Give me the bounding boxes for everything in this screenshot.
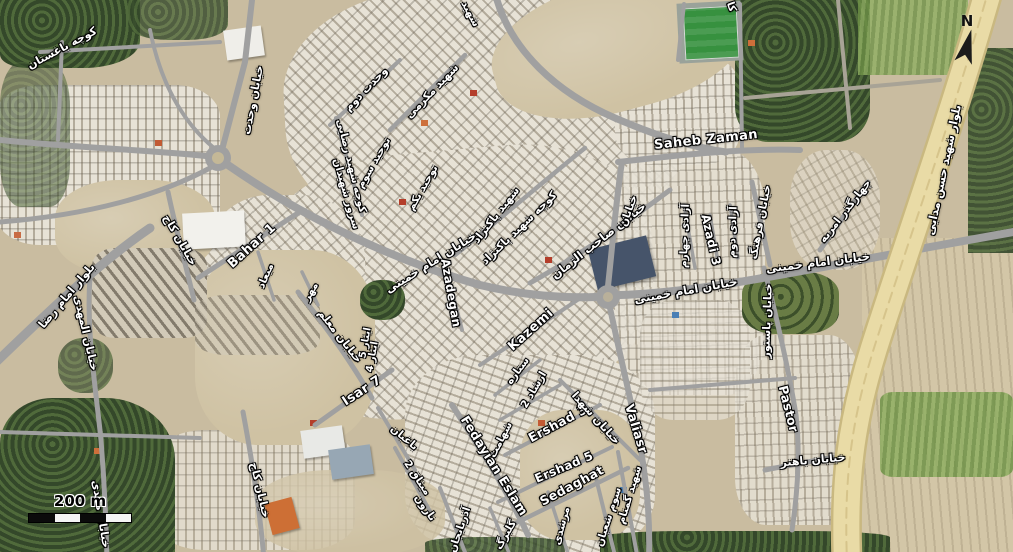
road-kaj-upper <box>168 192 194 300</box>
road-kazemi <box>480 295 585 365</box>
road-imam-reza-blvd <box>0 228 150 368</box>
road-orchard-vertical <box>838 0 850 128</box>
road-west-horizontal <box>0 140 206 156</box>
road-misagh <box>395 448 432 515</box>
roundabout-central-center <box>603 292 613 302</box>
road-farhang <box>752 182 770 265</box>
north-indicator: N <box>946 12 988 70</box>
road-sevom-shaban <box>594 470 616 552</box>
scale-bar-label: 200 m <box>28 492 132 510</box>
road-stadium-west <box>678 4 684 60</box>
road-moallem <box>298 292 372 398</box>
roads-layer <box>0 0 1013 552</box>
road-top-left-vertical <box>58 42 62 140</box>
road-ershad2 <box>500 385 560 420</box>
road-northwest <box>150 30 214 148</box>
north-arrow-icon <box>950 25 984 68</box>
road-golbarg <box>490 508 512 552</box>
road-vahdat-dovom <box>330 60 400 125</box>
roundabout-northwest-center <box>212 152 224 164</box>
road-chahargozar <box>820 182 868 250</box>
road-isar7 <box>315 370 392 425</box>
road-mokarrami <box>390 55 465 130</box>
road-fedayian-eslam <box>452 405 528 535</box>
road-azadi-3 <box>730 205 738 258</box>
road-azadegan <box>444 262 462 330</box>
road-sedaghat <box>512 468 628 525</box>
road-setareh <box>495 360 540 395</box>
road-pastor <box>764 268 798 530</box>
road-azadi-2 <box>710 215 718 262</box>
scale-segment <box>29 514 55 522</box>
road-imam-khomeini-east <box>620 232 1013 295</box>
road-vahdat <box>222 0 252 150</box>
road-north-curve <box>497 0 726 152</box>
road-baghban <box>378 408 415 470</box>
road-paknejad <box>455 148 585 255</box>
road-stadium-east <box>740 4 742 148</box>
road-rezaei <box>336 118 362 215</box>
road-orchard-horizontal <box>745 80 940 98</box>
scale-segment <box>106 514 132 522</box>
road-azadi-1 <box>684 205 695 268</box>
road-saheb-zaman-street <box>618 150 800 162</box>
road-miad <box>258 252 274 300</box>
road-ershad3 <box>505 405 600 455</box>
scale-bar: 200 m <box>28 492 132 523</box>
road-azarbaijan <box>440 488 468 552</box>
scale-bar-segments <box>28 513 132 523</box>
scale-segment <box>55 514 81 522</box>
road-kaj-lower <box>243 412 264 552</box>
road-sahebolzaman-diagonal <box>530 190 670 283</box>
road-bahar1 <box>198 213 298 278</box>
map-canvas[interactable]: کوچه باغستانخیابان وحدتوحدت دومشهید مکرم… <box>0 0 1013 552</box>
scale-segment <box>80 514 106 522</box>
road-pastor-cross <box>650 378 795 390</box>
road-southwest-from-roundabout <box>0 168 210 222</box>
road-top-left-horizontal <box>40 42 220 52</box>
